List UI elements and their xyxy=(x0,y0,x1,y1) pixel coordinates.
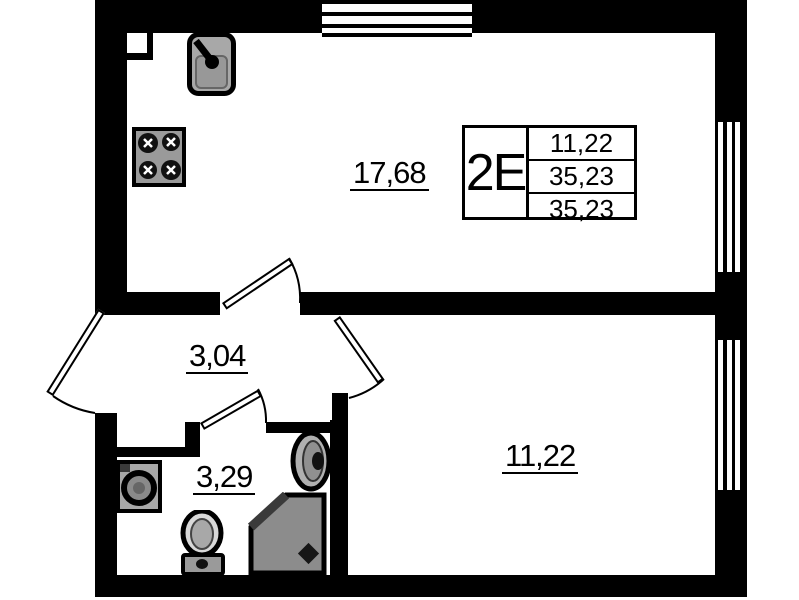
wall-right-upper xyxy=(715,0,747,122)
stamp-value-2: 35,23 xyxy=(529,161,634,194)
kitchen-sink-fixture xyxy=(187,32,236,96)
unit-stamp: 2Е 11,22 35,23 35,23 xyxy=(462,125,637,220)
kitchen-sink-icon xyxy=(187,32,236,96)
right-window-1 xyxy=(715,122,747,272)
wall-bedroom-bathroom xyxy=(330,420,348,575)
top-window xyxy=(322,0,472,37)
wall-left-upper xyxy=(95,0,127,313)
wall-niche xyxy=(127,33,147,53)
wall-kitchen-divider-left xyxy=(95,292,220,315)
right-window-2 xyxy=(715,340,747,490)
cooktop-icon xyxy=(132,127,186,187)
bedroom-door-leaf xyxy=(333,316,384,384)
cooktop-fixture xyxy=(132,127,186,187)
wall-left-lower xyxy=(95,413,117,597)
bathroom-area-label: 3,29 xyxy=(193,461,255,495)
entry-door-arc xyxy=(53,396,95,413)
toilet-icon xyxy=(180,510,226,577)
kitchen-living-area-label: 17,68 xyxy=(350,157,429,191)
unit-stamp-values: 11,22 35,23 35,23 xyxy=(529,128,634,217)
washing-machine-fixture xyxy=(116,460,162,513)
floor-plan: 17,68 3,04 3,29 11,22 2Е 11,22 35,23 35,… xyxy=(0,0,799,600)
corner-shower-fixture xyxy=(248,492,328,576)
toilet-fixture xyxy=(180,510,226,577)
wash-basin-fixture xyxy=(290,430,331,492)
bedroom-area-label: 11,22 xyxy=(502,440,578,474)
hallway-area-label: 3,04 xyxy=(186,340,248,374)
unit-type-label: 2Е xyxy=(465,128,529,217)
wall-right-lower xyxy=(715,490,747,597)
kitchen-door-leaf xyxy=(222,258,294,310)
wall-top-right xyxy=(472,0,747,33)
wall-bathroom-step xyxy=(185,422,200,457)
entry-door-leaf xyxy=(46,309,105,396)
wall-kitchen-divider-right xyxy=(300,292,715,315)
wall-bathroom-top-left xyxy=(115,447,185,457)
wall-bedroom-door-stub xyxy=(332,393,348,420)
washing-machine-icon xyxy=(116,460,162,513)
wash-basin-icon xyxy=(290,430,331,492)
wall-right-mid xyxy=(715,272,747,340)
bathroom-door-leaf xyxy=(200,390,262,430)
corner-shower-icon xyxy=(248,492,328,576)
stamp-value-3: 35,23 xyxy=(529,194,634,225)
stamp-value-1: 11,22 xyxy=(529,128,634,161)
wall-bottom xyxy=(95,575,747,597)
